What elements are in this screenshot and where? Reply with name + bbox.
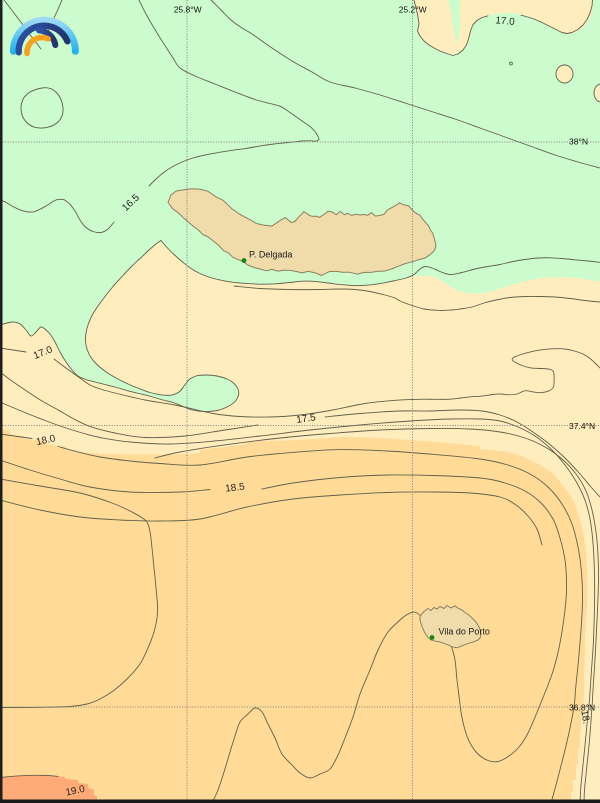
svg-text:25.2°W: 25.2°W [399, 5, 427, 15]
svg-text:17.0: 17.0 [495, 15, 516, 28]
svg-text:37.4°N: 37.4°N [569, 421, 595, 431]
svg-text:P. Delgada: P. Delgada [249, 250, 292, 260]
svg-text:Vila do Porto: Vila do Porto [439, 627, 490, 637]
svg-text:25.8°W: 25.8°W [174, 5, 202, 15]
svg-text:38°N: 38°N [569, 137, 588, 147]
